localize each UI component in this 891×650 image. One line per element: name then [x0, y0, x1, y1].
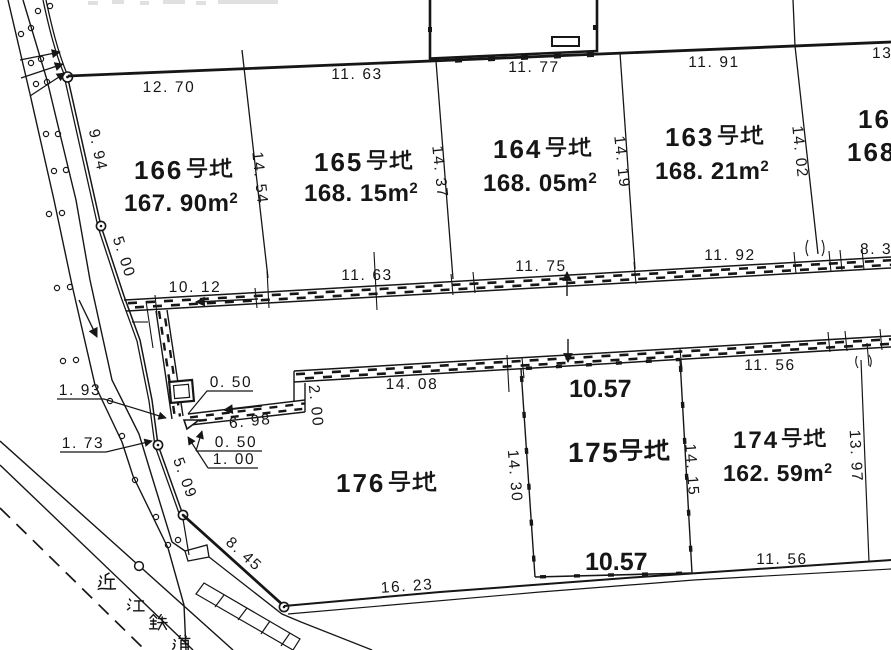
svg-text:11. 56: 11. 56: [756, 551, 808, 568]
svg-text:11. 63: 11. 63: [341, 267, 393, 284]
svg-text:164: 164: [493, 134, 542, 164]
svg-text:167. 90m2: 167. 90m2: [124, 190, 238, 217]
svg-text:12. 70: 12. 70: [143, 79, 196, 96]
svg-text:14. 08: 14. 08: [386, 376, 439, 393]
svg-text:0. 50: 0. 50: [215, 434, 257, 451]
svg-text:0. 50: 0. 50: [210, 374, 252, 391]
svg-text:168. 05m2: 168. 05m2: [483, 170, 597, 197]
svg-text:11. 92: 11. 92: [704, 247, 756, 264]
svg-text:165: 165: [314, 147, 363, 177]
svg-text:168: 168: [847, 137, 891, 167]
svg-text:174: 174: [733, 427, 779, 454]
svg-text:8. 3: 8. 3: [860, 241, 891, 258]
svg-text:162. 59m2: 162. 59m2: [723, 460, 833, 486]
svg-text:1. 73: 1. 73: [62, 435, 104, 452]
svg-text:13: 13: [872, 45, 891, 62]
svg-text:168. 21m2: 168. 21m2: [655, 158, 769, 185]
svg-text:11. 77: 11. 77: [508, 59, 560, 76]
svg-text:166: 166: [134, 155, 183, 185]
svg-text:11. 75: 11. 75: [515, 258, 567, 275]
svg-text:163: 163: [665, 122, 714, 152]
svg-text:13. 97: 13. 97: [846, 429, 866, 483]
svg-text:10. 12: 10. 12: [169, 279, 222, 296]
svg-text:175: 175: [568, 437, 619, 468]
svg-text:10.57: 10.57: [569, 375, 632, 403]
svg-text:1. 00: 1. 00: [213, 451, 255, 468]
svg-text:11. 56: 11. 56: [744, 357, 796, 374]
svg-text:1. 93: 1. 93: [59, 382, 101, 399]
svg-text:168. 15m2: 168. 15m2: [304, 180, 418, 207]
svg-text:11. 63: 11. 63: [331, 66, 383, 83]
svg-text:176: 176: [336, 468, 385, 498]
svg-text:10.57: 10.57: [585, 548, 648, 576]
svg-text:11. 91: 11. 91: [688, 54, 740, 71]
svg-text:16: 16: [858, 104, 891, 134]
